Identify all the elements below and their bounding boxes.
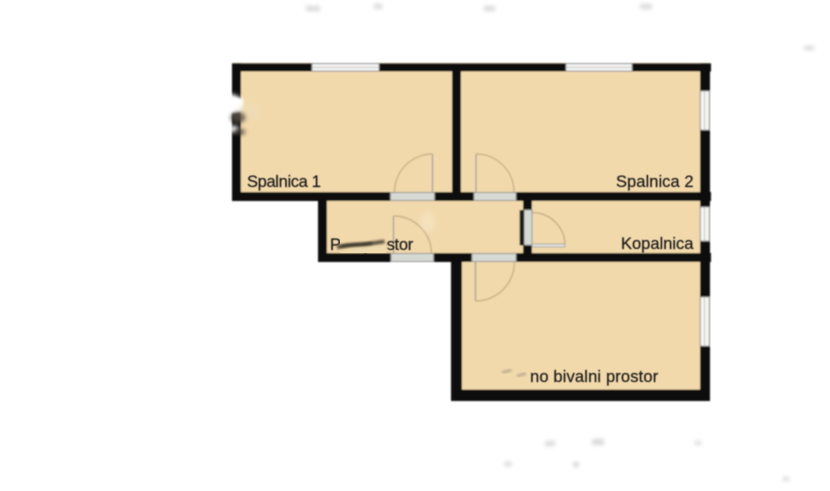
svg-text:Spalnica 1: Spalnica 1 (247, 173, 321, 191)
svg-text:no bivalni prostor: no bivalni prostor (530, 368, 659, 386)
svg-text:Spalnica 2: Spalnica 2 (616, 173, 694, 191)
svg-text:Kopalnica: Kopalnica (621, 235, 694, 253)
